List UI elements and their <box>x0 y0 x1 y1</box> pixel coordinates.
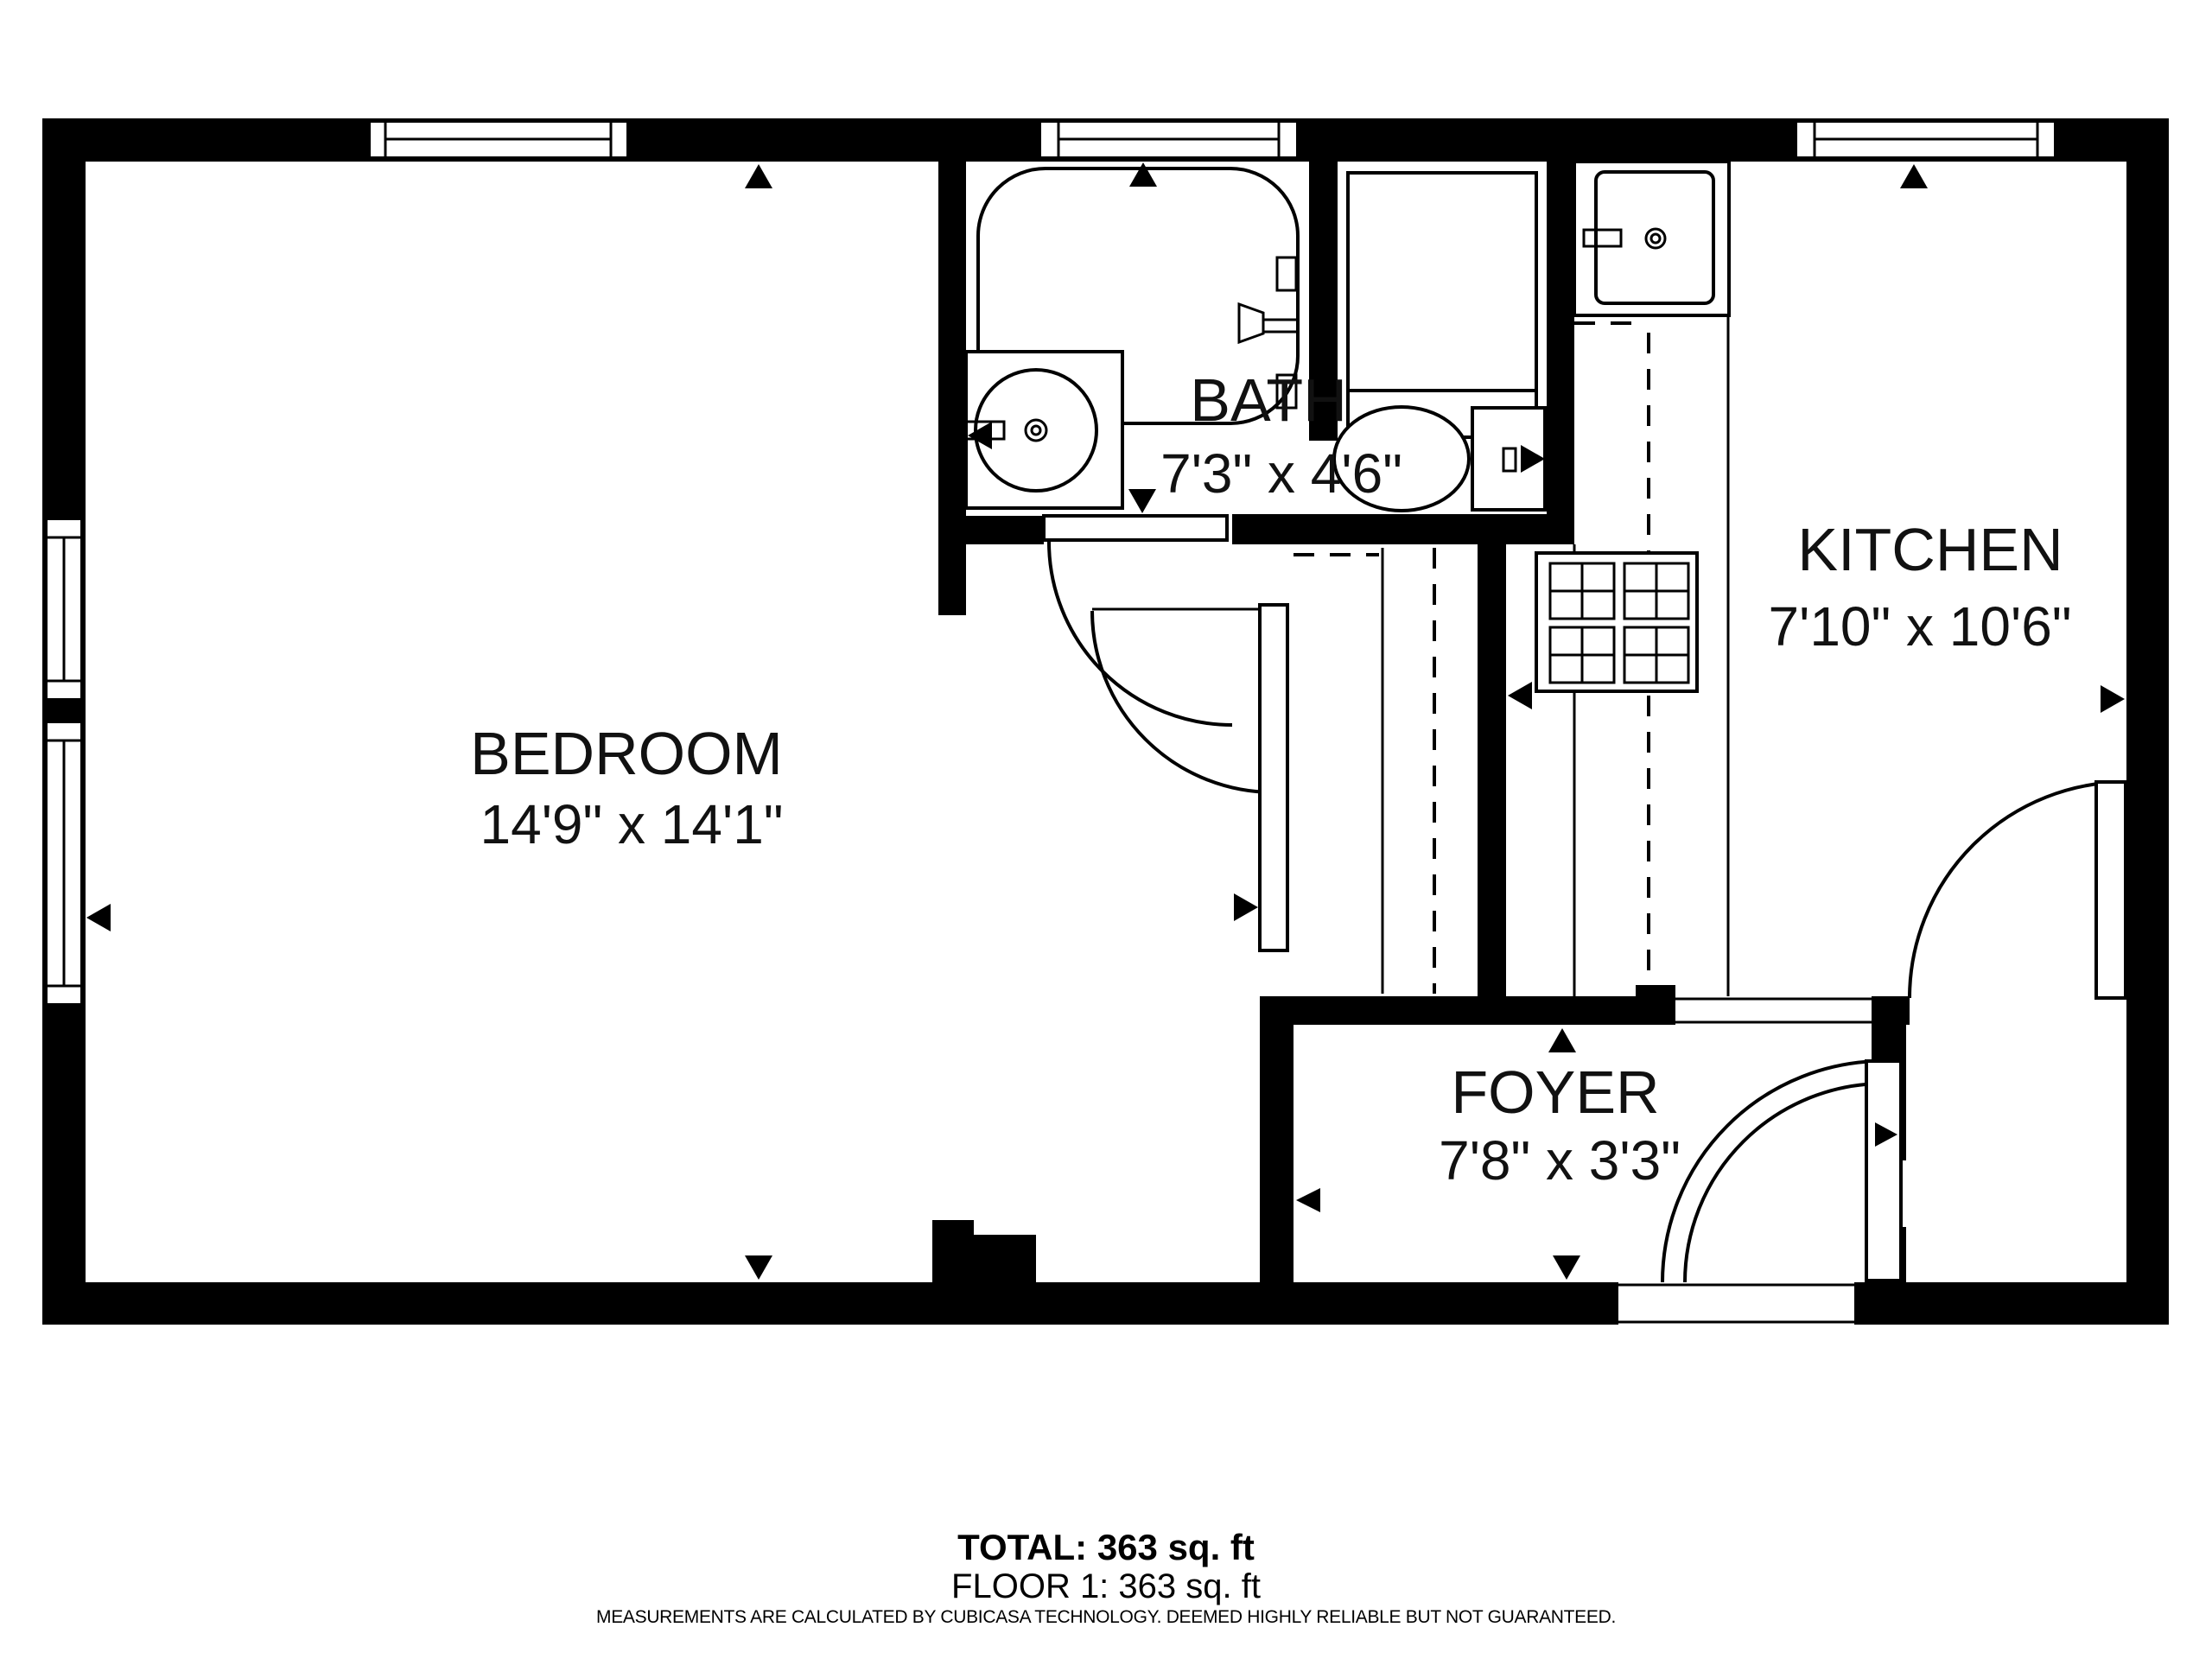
wall-exterior-right <box>2126 118 2169 1325</box>
marker-down-bedroom-icon <box>745 1255 772 1280</box>
entry-door <box>1662 1061 1901 1282</box>
total-area-text: TOTAL: 363 sq. ft <box>957 1527 1255 1567</box>
entry-door-opening <box>1618 1282 1854 1325</box>
marker-up-foyer-icon <box>1548 1028 1576 1052</box>
wall-pillar-step-a <box>932 1220 974 1282</box>
wall-shower-right <box>1547 162 1574 544</box>
disclaimer-text: MEASUREMENTS ARE CALCULATED BY CUBICASA … <box>596 1607 1616 1627</box>
marker-down-foyer-icon <box>1553 1255 1580 1280</box>
marker-left-bedroom-icon <box>86 904 111 931</box>
window-bath-top <box>1039 121 1298 158</box>
shower-icon <box>1348 173 1536 437</box>
window-bedroom-left-upper <box>46 518 82 700</box>
kitchen-dimensions: 7'10" x 10'6" <box>1769 595 2072 658</box>
marker-right-closet-icon <box>1234 893 1258 921</box>
bath-door <box>1044 516 1232 725</box>
wall-exterior-bottom-right-segment <box>1854 1282 2169 1325</box>
wall-foyer-top <box>1260 996 1675 1025</box>
floor-plan-page: BEDROOM 14'9" x 14'1" BATH 7'3" x 4'6" K… <box>0 0 2212 1659</box>
wardrobe-closet <box>1294 548 1434 994</box>
bedroom-door <box>1092 605 1287 950</box>
stove-icon <box>1536 553 1697 691</box>
wall-exterior-bottom-left-segment <box>42 1282 1618 1325</box>
marker-down-bath-icon <box>1128 489 1156 513</box>
marker-left-kitchen-icon <box>1508 682 1532 709</box>
foyer-label: FOYER <box>1451 1058 1659 1126</box>
entry-closet-door <box>1910 782 2126 998</box>
marker-up-kitchen-icon <box>1900 164 1928 188</box>
wall-bath-bottom-stub <box>966 516 1044 544</box>
bath-label: BATH <box>1190 366 1347 434</box>
bedroom-dimensions: 14'9" x 14'1" <box>480 793 784 855</box>
wall-bedroom-bath <box>938 162 966 615</box>
wall-bath-bottom-right <box>1232 514 1574 544</box>
wall-closet-right <box>1478 544 1506 996</box>
marker-left-foyer-icon <box>1296 1188 1320 1212</box>
marker-up-bedroom-icon <box>745 164 772 188</box>
bath-dimensions: 7'3" x 4'6" <box>1160 442 1402 505</box>
foyer-dimensions: 7'8" x 3'3" <box>1439 1129 1681 1192</box>
window-kitchen-top <box>1796 121 2056 158</box>
kitchen-sink-icon <box>1574 162 1729 315</box>
window-bedroom-top <box>369 121 628 158</box>
floor-plan-canvas: BEDROOM 14'9" x 14'1" BATH 7'3" x 4'6" K… <box>0 0 2212 1659</box>
wall-foyer-left <box>1260 1025 1294 1282</box>
kitchen-label: KITCHEN <box>1797 516 2063 583</box>
floor-area-text: FLOOR 1: 363 sq. ft <box>951 1567 1261 1605</box>
wall-pillar-step-b <box>974 1235 1036 1282</box>
marker-right-kitchen-icon <box>2101 685 2125 713</box>
wall-counter-end-stub <box>1636 985 1675 1025</box>
window-bedroom-left-lower <box>46 721 82 1005</box>
bedroom-label: BEDROOM <box>470 720 783 787</box>
